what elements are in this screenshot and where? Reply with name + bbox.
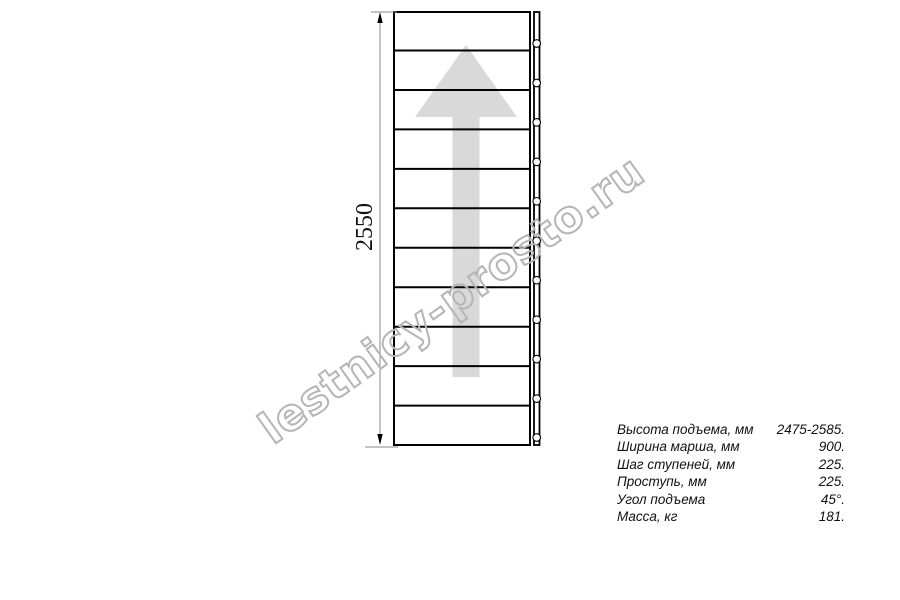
bolt-hole-icon <box>533 198 541 206</box>
spec-value: 225. <box>809 456 845 473</box>
spec-value: 900. <box>809 438 845 455</box>
dimension-2550: 2550 <box>352 12 398 447</box>
spec-row-step: Шаг ступеней, мм 225. <box>617 456 845 473</box>
dimension-arrow-up-icon <box>377 12 382 23</box>
page-canvas: 2550 lestnicy-prosto.ru Высота подъема, … <box>0 0 900 600</box>
spec-value: 2475-2585. <box>767 421 845 438</box>
bolt-hole-icon <box>533 158 541 166</box>
spec-row-mass: Масса, кг 181. <box>617 508 845 525</box>
spec-label: Угол подъема <box>617 491 705 508</box>
bolt-hole-icon <box>533 276 541 284</box>
bolt-hole-icon <box>533 40 541 48</box>
spec-label: Проступь, мм <box>617 473 707 490</box>
spec-label: Масса, кг <box>617 508 677 525</box>
bolt-hole-icon <box>533 237 541 245</box>
spec-label: Шаг ступеней, мм <box>617 456 735 473</box>
spec-value: 181. <box>809 508 845 525</box>
bolt-hole-icon <box>533 395 541 403</box>
stringer-strip <box>534 12 540 445</box>
spec-label: Ширина марша, мм <box>617 438 740 455</box>
spec-row-height: Высота подъема, мм 2475-2585. <box>617 421 845 438</box>
spec-value: 45°. <box>811 491 845 508</box>
bolt-hole-icon <box>533 355 541 363</box>
bolt-hole-icon <box>533 316 541 324</box>
spec-label: Высота подъема, мм <box>617 421 753 438</box>
bolt-hole-icon <box>533 119 541 127</box>
dimension-label: 2550 <box>352 203 378 251</box>
spec-table: Высота подъема, мм 2475-2585. Ширина мар… <box>617 421 845 525</box>
spec-row-angle: Угол подъема 45°. <box>617 491 845 508</box>
dimension-arrow-down-icon <box>377 434 382 445</box>
spec-row-tread: Проступь, мм 225. <box>617 473 845 490</box>
spec-row-width: Ширина марша, мм 900. <box>617 438 845 455</box>
bolt-hole-icon <box>533 434 541 442</box>
bolt-hole-icon <box>533 79 541 87</box>
spec-value: 225. <box>809 473 845 490</box>
